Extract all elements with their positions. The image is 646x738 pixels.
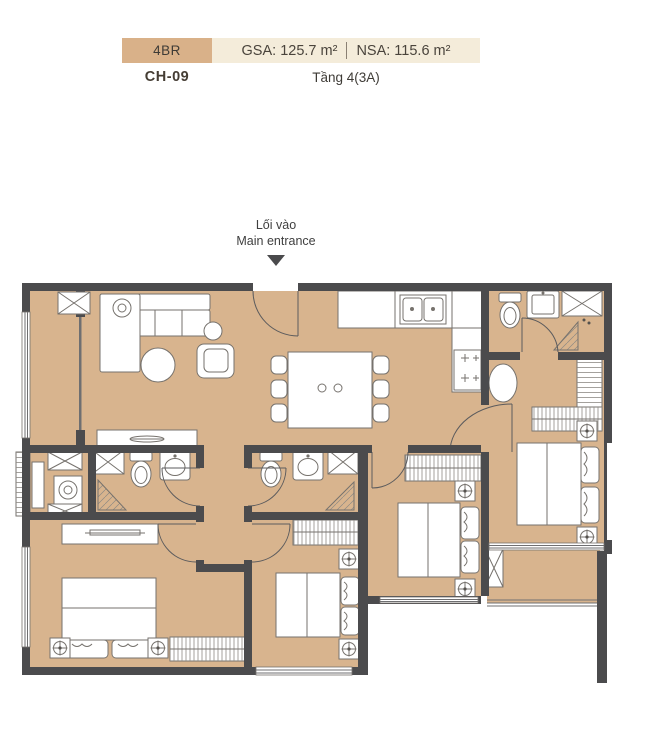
- coffee-table: [141, 348, 175, 382]
- ceiling-fan: [339, 549, 359, 569]
- loggia-door: [32, 462, 44, 508]
- oval-tub: [489, 364, 517, 402]
- dining-chair: [373, 380, 389, 398]
- pillow: [461, 507, 479, 539]
- balcony-slider: [489, 543, 604, 550]
- wash-basin: [160, 450, 190, 480]
- dining-chair: [271, 404, 287, 422]
- wash-basin: [293, 450, 323, 480]
- balcony-floor: [487, 543, 600, 603]
- toilet: [499, 293, 521, 328]
- kitchen-counter: [452, 328, 483, 392]
- ceiling-fan: [339, 639, 359, 659]
- pillow: [66, 640, 108, 658]
- ceiling-fan: [148, 638, 168, 658]
- tv-cabinet: [62, 524, 158, 544]
- ceiling-fan: [455, 481, 475, 501]
- ceiling-fan: [50, 638, 70, 658]
- bed: [398, 503, 460, 577]
- dining-chair: [373, 356, 389, 374]
- ceiling-fan: [577, 421, 597, 441]
- dining-table: [288, 352, 372, 428]
- washing-machine: [54, 476, 82, 504]
- bed: [276, 573, 340, 637]
- side-table: [204, 322, 222, 340]
- dining-chair: [271, 380, 287, 398]
- bed: [517, 443, 581, 525]
- pillow: [461, 541, 479, 573]
- wash-basin: [527, 291, 559, 318]
- floorplan-drawing: [0, 0, 646, 738]
- dining-chair: [373, 404, 389, 422]
- toilet: [260, 452, 282, 487]
- floorplan-page: 4BR GSA: 125.7 m² NSA: 115.6 m² CH-09 Tầ…: [0, 0, 646, 738]
- dining-area: [271, 352, 389, 428]
- loggia-glass: [79, 317, 82, 430]
- toilet: [130, 452, 152, 487]
- dining-chair: [271, 356, 287, 374]
- bed: [62, 578, 156, 640]
- plant: [113, 299, 131, 317]
